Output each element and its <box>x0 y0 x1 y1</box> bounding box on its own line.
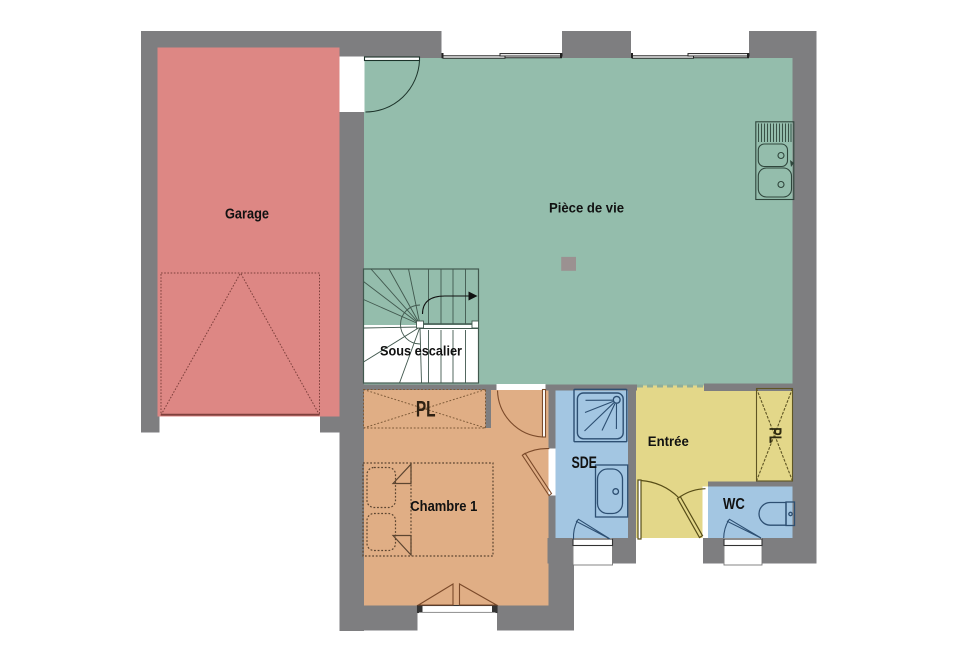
svg-text:Sous escalier: Sous escalier <box>380 343 462 359</box>
svg-text:Chambre 1: Chambre 1 <box>410 499 477 515</box>
svg-text:Garage: Garage <box>225 206 269 222</box>
svg-text:Pièce de vie: Pièce de vie <box>549 199 624 215</box>
svg-text:PL: PL <box>416 396 436 421</box>
svg-text:Entrée: Entrée <box>648 433 689 449</box>
svg-text:WC: WC <box>723 496 745 513</box>
svg-text:PL: PL <box>766 427 786 443</box>
svg-text:SDE: SDE <box>571 454 597 472</box>
